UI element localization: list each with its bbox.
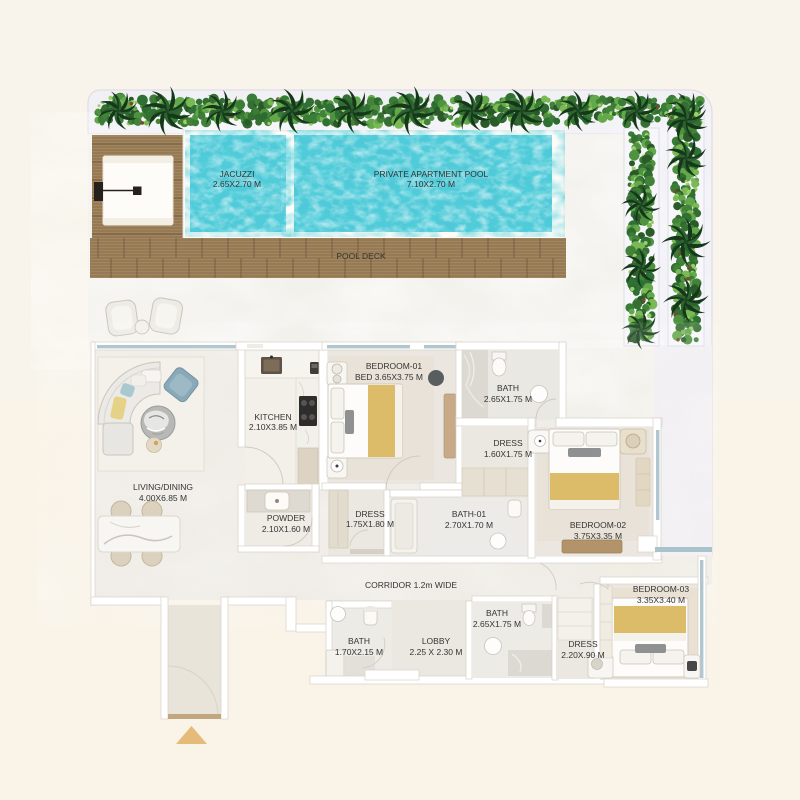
svg-text:PRIVATE APARTMENT POOL: PRIVATE APARTMENT POOL bbox=[374, 169, 489, 179]
svg-text:BED 3.65X3.75 M: BED 3.65X3.75 M bbox=[355, 372, 423, 382]
svg-text:BATH: BATH bbox=[497, 383, 519, 393]
svg-text:4.00X6.85 M: 4.00X6.85 M bbox=[139, 493, 187, 503]
svg-text:2.65X1.75 M: 2.65X1.75 M bbox=[473, 619, 521, 629]
svg-text:2.10X1.60 M: 2.10X1.60 M bbox=[262, 524, 310, 534]
svg-text:CORRIDOR 1.2m WIDE: CORRIDOR 1.2m WIDE bbox=[365, 580, 457, 590]
svg-text:POOL DECK: POOL DECK bbox=[336, 251, 386, 261]
svg-text:POWDER: POWDER bbox=[267, 513, 305, 523]
svg-text:7.10X2.70 M: 7.10X2.70 M bbox=[407, 179, 455, 189]
svg-text:BEDROOM-03: BEDROOM-03 bbox=[633, 584, 689, 594]
svg-text:DRESS: DRESS bbox=[355, 509, 385, 519]
svg-text:2.25 X 2.30 M: 2.25 X 2.30 M bbox=[410, 647, 463, 657]
svg-text:BATH: BATH bbox=[348, 636, 370, 646]
svg-text:LIVING/DINING: LIVING/DINING bbox=[133, 482, 193, 492]
svg-text:2.65X1.75 M: 2.65X1.75 M bbox=[484, 394, 532, 404]
svg-text:1.70X2.15 M: 1.70X2.15 M bbox=[335, 647, 383, 657]
svg-text:2.10X3.85 M: 2.10X3.85 M bbox=[249, 422, 297, 432]
svg-text:BEDROOM-02: BEDROOM-02 bbox=[570, 520, 626, 530]
svg-text:2.65X2.70 M: 2.65X2.70 M bbox=[213, 179, 261, 189]
svg-text:2.70X1.70 M: 2.70X1.70 M bbox=[445, 520, 493, 530]
svg-text:KITCHEN: KITCHEN bbox=[254, 412, 291, 422]
svg-text:DRESS: DRESS bbox=[493, 438, 523, 448]
svg-text:LOBBY: LOBBY bbox=[422, 636, 451, 646]
svg-text:2.20X.90 M: 2.20X.90 M bbox=[561, 650, 604, 660]
svg-text:3.35X3.40 M: 3.35X3.40 M bbox=[637, 595, 685, 605]
svg-text:1.75X1.80 M: 1.75X1.80 M bbox=[346, 519, 394, 529]
svg-text:BATH-01: BATH-01 bbox=[452, 509, 487, 519]
svg-text:BATH: BATH bbox=[486, 608, 508, 618]
svg-text:BEDROOM-01: BEDROOM-01 bbox=[366, 361, 422, 371]
svg-text:JACUZZI: JACUZZI bbox=[220, 169, 255, 179]
svg-text:DRESS: DRESS bbox=[568, 639, 598, 649]
svg-text:3.75X3.35 M: 3.75X3.35 M bbox=[574, 531, 622, 541]
svg-text:1.60X1.75 M: 1.60X1.75 M bbox=[484, 449, 532, 459]
